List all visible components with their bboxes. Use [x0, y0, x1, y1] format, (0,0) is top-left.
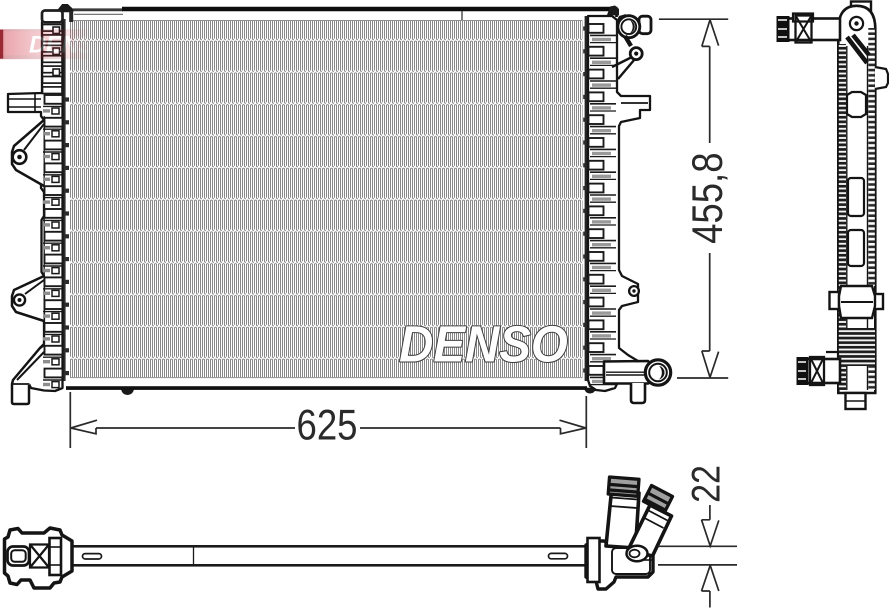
svg-text:625: 625 [297, 402, 358, 450]
svg-text:DENSO: DENSO [399, 316, 568, 373]
svg-text:22: 22 [685, 465, 729, 503]
svg-text:DENSO: DENSO [29, 31, 113, 58]
svg-text:455,8: 455,8 [684, 152, 732, 243]
